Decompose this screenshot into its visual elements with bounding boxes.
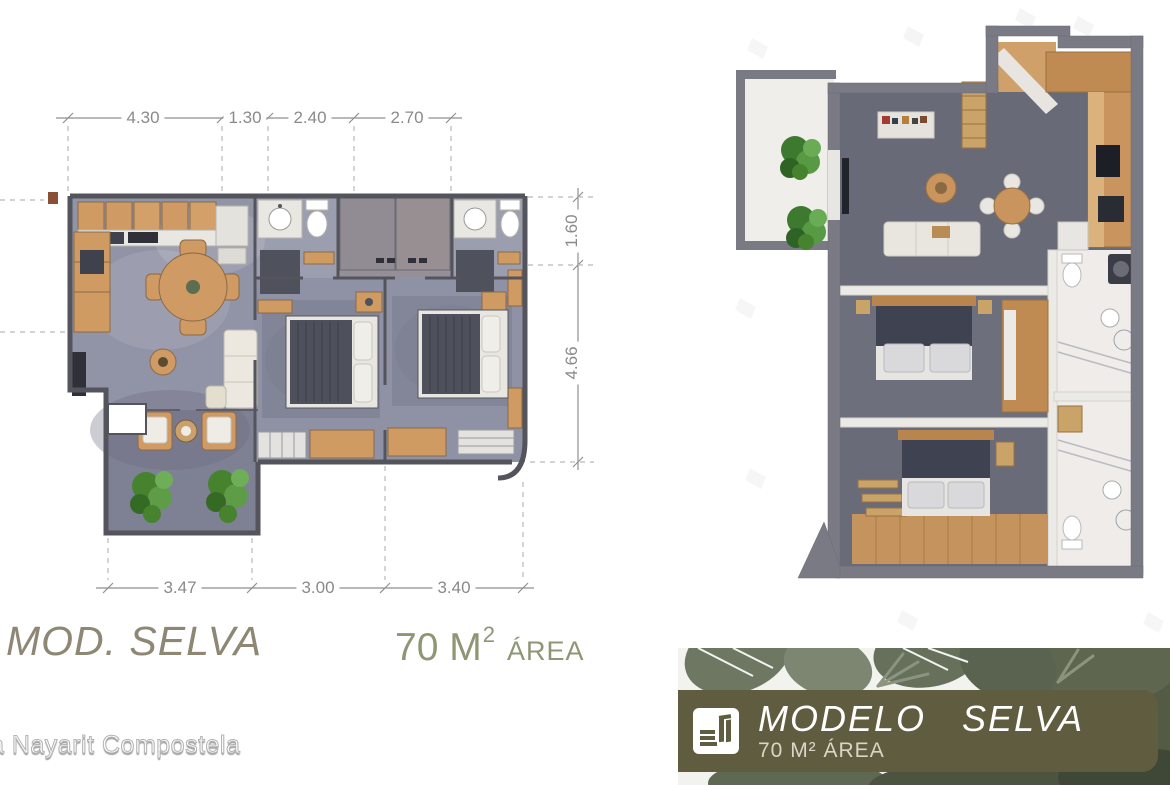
toilet-3d: [1063, 263, 1081, 287]
page: 4.30 1.30 2.40 2.70 1.60 4.66 3.47 3.00 …: [0, 0, 1170, 785]
dim-label-top-3: 2.40: [288, 108, 331, 128]
fridge-3d: [1058, 222, 1088, 250]
dim-label-right-2: 4.66: [562, 341, 582, 384]
shower-room: [340, 198, 450, 270]
dim-label-right-1: 1.60: [562, 209, 582, 252]
oven-3d: [1098, 196, 1124, 222]
banner-subtitle: 70 M² ÁREA: [758, 740, 1084, 762]
wood-floor-3d: [852, 514, 1048, 564]
cooktop-3d: [1096, 145, 1120, 177]
dim-label-top-1: 4.30: [121, 108, 164, 128]
banner-text: MODELO SELVA 70 M² ÁREA: [758, 700, 1084, 762]
floorplan-2d-drawing: [0, 0, 660, 620]
area-unit-label: ÁREA: [507, 636, 585, 666]
watermark-text: a Nayarit Compostela: [0, 731, 240, 760]
brand-logo-icon: [692, 707, 740, 755]
bed: [286, 316, 378, 408]
fridge: [216, 206, 248, 246]
floorplan-3d-render: [690, 0, 1170, 645]
dim-label-bottom-2: 3.00: [296, 578, 339, 598]
bedroomA-3d: [856, 296, 992, 380]
nightstand: [482, 292, 506, 310]
area-superscript: 2: [483, 622, 495, 647]
toilet: [501, 211, 519, 237]
toilet-3d: [1063, 516, 1081, 540]
area-label-left: 70 M2ÁREA: [395, 622, 584, 670]
sink: [80, 250, 104, 274]
wall-void: [108, 404, 146, 434]
bed: [418, 310, 508, 398]
model-title: MOD. SELVA: [6, 618, 262, 665]
tv-3d: [842, 158, 849, 214]
model-banner: MODELO SELVA 70 M² ÁREA: [678, 690, 1158, 772]
dim-label-top-2: 1.30: [223, 108, 266, 128]
dim-label-bottom-3: 3.40: [432, 578, 475, 598]
entry-door-mark: [48, 192, 58, 204]
bookshelf-3d: [878, 112, 934, 138]
balcony-door-gap: [828, 150, 840, 220]
dim-label-bottom-1: 3.47: [158, 578, 201, 598]
cooktop: [128, 232, 158, 243]
banner-title: MODELO SELVA: [758, 700, 1084, 738]
area-value: 70 M: [395, 626, 482, 669]
dim-label-top-4: 2.70: [385, 108, 428, 128]
toilet: [307, 211, 327, 237]
banner-block: MODELO SELVA 70 M² ÁREA: [678, 648, 1170, 785]
